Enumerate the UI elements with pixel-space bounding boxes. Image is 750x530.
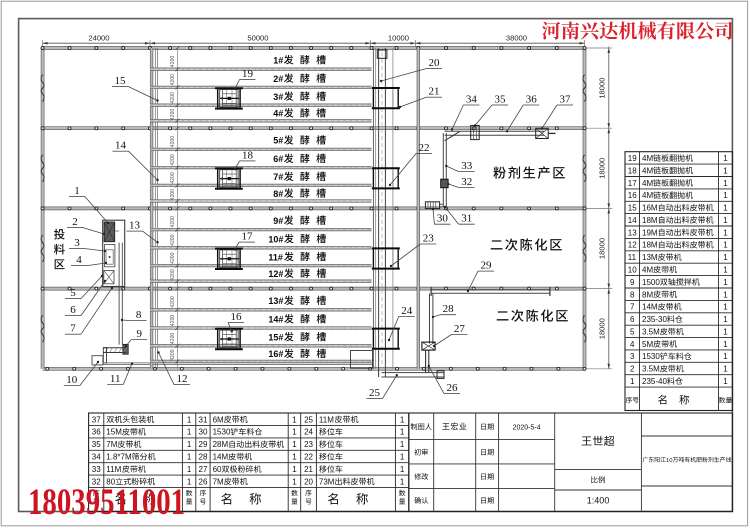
svg-text:28: 28 (443, 303, 455, 315)
svg-text:17: 17 (628, 179, 637, 188)
svg-text:18039511001: 18039511001 (28, 482, 185, 523)
svg-text:1: 1 (74, 185, 80, 197)
svg-text:37: 37 (92, 415, 101, 424)
svg-text:7: 7 (70, 323, 76, 335)
svg-text:21: 21 (429, 86, 440, 98)
svg-text:1: 1 (723, 377, 728, 386)
svg-text:1:400: 1:400 (587, 496, 610, 506)
svg-text:12#: 12# (268, 269, 283, 279)
svg-text:4200: 4200 (170, 172, 176, 183)
svg-text:24: 24 (401, 305, 413, 317)
svg-text:1: 1 (723, 253, 728, 262)
svg-text:33: 33 (461, 160, 473, 172)
svg-text:1: 1 (723, 154, 728, 163)
svg-text:1: 1 (400, 465, 405, 474)
svg-text:4M: 4M (642, 154, 653, 163)
svg-text:9: 9 (630, 278, 635, 287)
svg-text:1: 1 (723, 340, 728, 349)
svg-text:4200: 4200 (170, 92, 176, 103)
svg-text:36: 36 (92, 428, 101, 437)
svg-text:4#: 4# (273, 109, 283, 119)
svg-text:31: 31 (461, 213, 472, 225)
svg-text:4200: 4200 (170, 136, 176, 147)
svg-text:1: 1 (723, 365, 728, 374)
svg-text:7M: 7M (213, 477, 224, 486)
svg-text:1: 1 (723, 352, 728, 361)
svg-text:14: 14 (628, 216, 637, 225)
svg-text:18: 18 (242, 149, 254, 161)
svg-text:19: 19 (242, 68, 254, 80)
svg-text:18000: 18000 (597, 78, 606, 99)
svg-text:22: 22 (419, 142, 430, 154)
svg-text:60: 60 (213, 465, 222, 474)
svg-text:10: 10 (666, 458, 673, 464)
svg-text:6#: 6# (273, 154, 283, 164)
svg-text:1: 1 (292, 477, 297, 486)
svg-text:19M: 19M (642, 228, 658, 237)
svg-text:38000: 38000 (506, 34, 527, 43)
svg-text:1530: 1530 (642, 352, 660, 361)
svg-text:29: 29 (199, 440, 208, 449)
svg-text:1: 1 (723, 191, 728, 200)
svg-text:1: 1 (187, 453, 192, 462)
svg-text:235-40: 235-40 (642, 377, 667, 386)
svg-text:11#: 11# (268, 252, 283, 262)
svg-text:7#: 7# (273, 172, 283, 182)
svg-text:24: 24 (304, 428, 313, 437)
svg-text:1: 1 (723, 266, 728, 275)
svg-text:18M: 18M (642, 216, 658, 225)
svg-text:1: 1 (400, 453, 405, 462)
svg-text:26: 26 (447, 382, 459, 394)
svg-text:1.8*7M: 1.8*7M (106, 453, 132, 462)
svg-text:4200: 4200 (170, 74, 176, 85)
svg-text:13: 13 (628, 228, 637, 237)
svg-text:20: 20 (304, 477, 313, 486)
svg-text:6: 6 (630, 315, 635, 324)
svg-text:1: 1 (292, 453, 297, 462)
svg-text:1: 1 (630, 377, 635, 386)
svg-text:8: 8 (136, 309, 142, 321)
svg-text:7M: 7M (106, 440, 117, 449)
svg-text:18M: 18M (642, 241, 658, 250)
svg-text:5M: 5M (642, 340, 653, 349)
svg-text:1#: 1# (273, 56, 283, 66)
svg-text:24000: 24000 (88, 34, 109, 43)
svg-text:1: 1 (723, 204, 728, 213)
svg-text:6: 6 (70, 304, 76, 316)
svg-text:50000: 50000 (247, 34, 268, 43)
svg-text:18000: 18000 (597, 238, 606, 259)
svg-text:18000: 18000 (597, 318, 606, 339)
svg-text:10: 10 (628, 266, 637, 275)
svg-text:18000: 18000 (597, 158, 606, 179)
svg-text:3#: 3# (273, 92, 283, 102)
svg-text:32: 32 (461, 176, 472, 188)
svg-text:4200: 4200 (170, 269, 176, 280)
svg-text:18: 18 (628, 166, 637, 175)
svg-text:25: 25 (369, 387, 381, 399)
svg-text:10000: 10000 (388, 34, 409, 43)
svg-text:1: 1 (723, 328, 728, 337)
svg-text:1: 1 (723, 228, 728, 237)
svg-text:3: 3 (630, 352, 635, 361)
svg-text:10: 10 (66, 374, 78, 386)
svg-text:28M: 28M (213, 440, 229, 449)
svg-text:1: 1 (400, 477, 405, 486)
svg-text:27: 27 (199, 465, 208, 474)
svg-text:4: 4 (76, 254, 82, 266)
svg-text:30: 30 (437, 213, 449, 225)
svg-text:1: 1 (187, 465, 192, 474)
svg-text:12: 12 (628, 241, 637, 250)
svg-text:1: 1 (187, 440, 192, 449)
svg-text:16: 16 (628, 191, 637, 200)
svg-text:11M: 11M (106, 465, 121, 474)
svg-text:73M: 73M (319, 477, 335, 486)
svg-text:4200: 4200 (170, 349, 176, 360)
svg-text:9: 9 (136, 328, 142, 340)
svg-text:28: 28 (199, 453, 208, 462)
svg-text:1: 1 (400, 440, 405, 449)
svg-text:29: 29 (481, 260, 493, 272)
svg-text:37: 37 (560, 93, 572, 105)
svg-text:16M: 16M (642, 204, 658, 213)
svg-text:14M: 14M (213, 453, 229, 462)
svg-text:4M: 4M (642, 179, 653, 188)
svg-text:13#: 13# (268, 296, 283, 306)
svg-text:7: 7 (630, 303, 635, 312)
svg-text:4M: 4M (642, 266, 653, 275)
svg-text:33: 33 (92, 465, 101, 474)
svg-text:4200: 4200 (170, 252, 176, 263)
svg-text:4200: 4200 (170, 154, 176, 165)
svg-text:23: 23 (304, 440, 313, 449)
svg-text:3: 3 (74, 237, 80, 249)
svg-text:19: 19 (628, 154, 637, 163)
svg-text:5: 5 (630, 328, 635, 337)
svg-text:35: 35 (92, 440, 101, 449)
svg-text:13: 13 (129, 220, 141, 232)
svg-text:16: 16 (231, 311, 243, 323)
svg-text:26: 26 (199, 477, 208, 486)
svg-text:30: 30 (199, 428, 208, 437)
svg-text:15: 15 (115, 75, 127, 87)
svg-text:8: 8 (630, 290, 635, 299)
svg-text:4M: 4M (642, 166, 653, 175)
svg-text:35: 35 (495, 93, 507, 105)
svg-text:1: 1 (723, 216, 728, 225)
svg-text:11M: 11M (319, 415, 334, 424)
svg-text:1530: 1530 (213, 428, 231, 437)
svg-text:1: 1 (292, 415, 297, 424)
svg-text:4200: 4200 (170, 216, 176, 227)
svg-text:15M: 15M (106, 428, 122, 437)
svg-text:14M: 14M (642, 303, 658, 312)
svg-text:21: 21 (304, 465, 313, 474)
svg-text:17: 17 (242, 231, 254, 243)
svg-text:25: 25 (304, 415, 313, 424)
svg-text:1: 1 (723, 179, 728, 188)
svg-text:9#: 9# (273, 216, 283, 226)
svg-text:8M: 8M (642, 290, 653, 299)
svg-text:27: 27 (454, 323, 466, 335)
svg-text:1: 1 (292, 440, 297, 449)
svg-text:4200: 4200 (170, 315, 176, 326)
svg-text:1: 1 (400, 428, 405, 437)
svg-text:23: 23 (423, 232, 435, 244)
svg-text:2020-5-4: 2020-5-4 (513, 424, 541, 431)
svg-text:4200: 4200 (170, 333, 176, 344)
svg-text:4200: 4200 (170, 56, 176, 67)
svg-text:4: 4 (630, 340, 635, 349)
svg-text:4200: 4200 (170, 109, 176, 120)
svg-text:2: 2 (630, 365, 635, 374)
svg-text:1: 1 (400, 415, 405, 424)
svg-text:15: 15 (628, 204, 637, 213)
svg-text:5#: 5# (273, 136, 283, 146)
svg-text:1: 1 (723, 278, 728, 287)
svg-text:3.5M: 3.5M (642, 365, 660, 374)
svg-text:36: 36 (526, 93, 538, 105)
svg-text:1: 1 (292, 465, 297, 474)
svg-text:14#: 14# (268, 315, 283, 325)
svg-text:4200: 4200 (170, 189, 176, 200)
svg-text:4200: 4200 (170, 296, 176, 307)
svg-text:8#: 8# (273, 189, 283, 199)
svg-text:31: 31 (199, 415, 208, 424)
svg-text:16#: 16# (268, 349, 283, 359)
svg-text:1: 1 (292, 428, 297, 437)
svg-text:15#: 15# (268, 333, 283, 343)
svg-text:34: 34 (92, 453, 101, 462)
svg-text:235-30: 235-30 (642, 315, 667, 324)
svg-text:13M: 13M (642, 253, 658, 262)
svg-text:1: 1 (723, 315, 728, 324)
svg-text:6M: 6M (213, 415, 224, 424)
svg-text:1: 1 (187, 428, 192, 437)
svg-text:5: 5 (70, 287, 76, 299)
svg-text:4M: 4M (642, 191, 653, 200)
svg-text:1500: 1500 (642, 278, 660, 287)
svg-text:34: 34 (466, 93, 478, 105)
svg-text:2: 2 (72, 216, 78, 228)
svg-text:12: 12 (177, 373, 188, 385)
svg-text:4200: 4200 (170, 234, 176, 245)
svg-text:3.5M: 3.5M (642, 328, 660, 337)
svg-text:14: 14 (115, 140, 127, 152)
svg-text:1: 1 (187, 477, 192, 486)
svg-text:1: 1 (187, 415, 192, 424)
svg-text:1: 1 (723, 290, 728, 299)
svg-text:2#: 2# (273, 74, 283, 84)
svg-text:10#: 10# (268, 234, 283, 244)
svg-text:20: 20 (429, 57, 441, 69)
svg-text:1: 1 (723, 241, 728, 250)
svg-text:11: 11 (628, 253, 637, 262)
svg-text:1: 1 (723, 303, 728, 312)
svg-text:1: 1 (723, 166, 728, 175)
svg-text:11: 11 (110, 373, 121, 385)
svg-text:22: 22 (304, 453, 313, 462)
